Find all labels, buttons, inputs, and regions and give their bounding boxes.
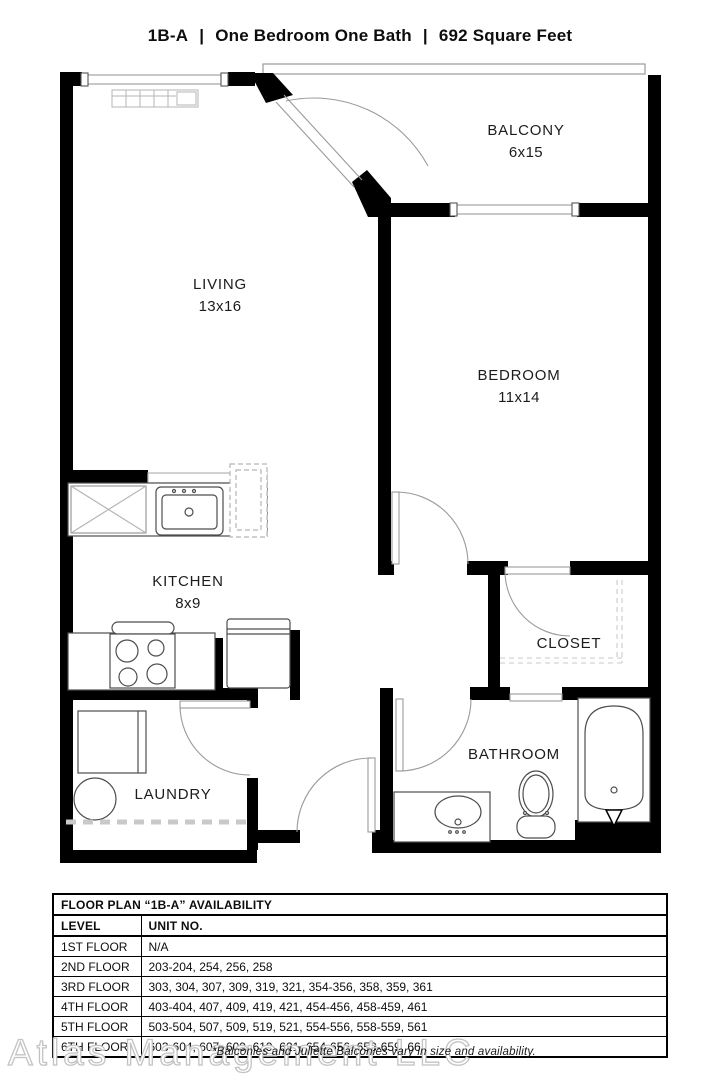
bedroom-door-leaf <box>392 492 399 564</box>
walls <box>60 72 661 863</box>
units-cell: 303, 304, 307, 309, 319, 321, 354-356, 3… <box>141 977 667 997</box>
level-cell: 4TH FLOOR <box>53 997 141 1017</box>
dishwasher <box>71 486 146 533</box>
column-header-unit-no: UNIT NO. <box>141 915 667 936</box>
level-cell: 1ST FLOOR <box>53 936 141 957</box>
closet-door-leaf <box>505 567 570 574</box>
bathroom-fixtures <box>394 698 650 842</box>
room-label-kitchen: KITCHEN 8x9 <box>98 574 278 612</box>
stove <box>110 622 175 688</box>
level-cell: 3RD FLOOR <box>53 977 141 997</box>
room-label-bedroom: BEDROOM 11x14 <box>429 368 609 406</box>
heater-vent <box>112 90 198 107</box>
refrigerator <box>227 619 290 688</box>
room-label-laundry: LAUNDRY <box>83 787 263 803</box>
balcony-door-arc <box>286 98 428 166</box>
table-row: 3RD FLOOR 303, 304, 307, 309, 319, 321, … <box>53 977 667 997</box>
entry-door-arc <box>297 758 371 832</box>
washer <box>78 711 146 773</box>
room-label-balcony: BALCONY 6x15 <box>436 123 616 161</box>
entry-door-leaf <box>368 758 375 832</box>
floor-plan-page: 1B-A | One Bedroom One Bath | 692 Square… <box>0 0 720 1080</box>
vanity-sink <box>394 792 490 842</box>
units-cell: 403-404, 407, 409, 419, 421, 454-456, 45… <box>141 997 667 1017</box>
closet-door-arc <box>505 571 570 636</box>
bathroom-threshold <box>510 694 562 701</box>
bedroom-door-arc <box>396 492 468 564</box>
table-row: 1ST FLOOR N/A <box>53 936 667 957</box>
table-row: 4TH FLOOR 403-404, 407, 409, 419, 421, 4… <box>53 997 667 1017</box>
balcony-railing <box>263 64 645 74</box>
toilet <box>517 771 555 838</box>
bathroom-door-leaf <box>396 699 403 771</box>
room-label-bathroom: BATHROOM <box>424 747 604 763</box>
upper-cabinets-dashed <box>230 464 267 537</box>
availability-table-title: FLOOR PLAN “1B-A” AVAILABILITY <box>53 894 667 915</box>
column-header-level: LEVEL <box>53 915 141 936</box>
table-row: 2ND FLOOR 203-204, 254, 256, 258 <box>53 957 667 977</box>
balcony-disclaimer-note: *Balconies and Juliette Balconies vary i… <box>212 1046 536 1058</box>
laundry-door-leaf <box>180 701 250 708</box>
kitchen-sink <box>156 487 223 535</box>
level-cell: 2ND FLOOR <box>53 957 141 977</box>
room-label-closet: CLOSET <box>479 636 659 652</box>
units-cell: 203-204, 254, 256, 258 <box>141 957 667 977</box>
laundry-door-arc <box>180 705 250 775</box>
room-label-living: LIVING 13x16 <box>130 277 310 315</box>
units-cell: N/A <box>141 936 667 957</box>
laundry-fixtures <box>66 711 246 822</box>
